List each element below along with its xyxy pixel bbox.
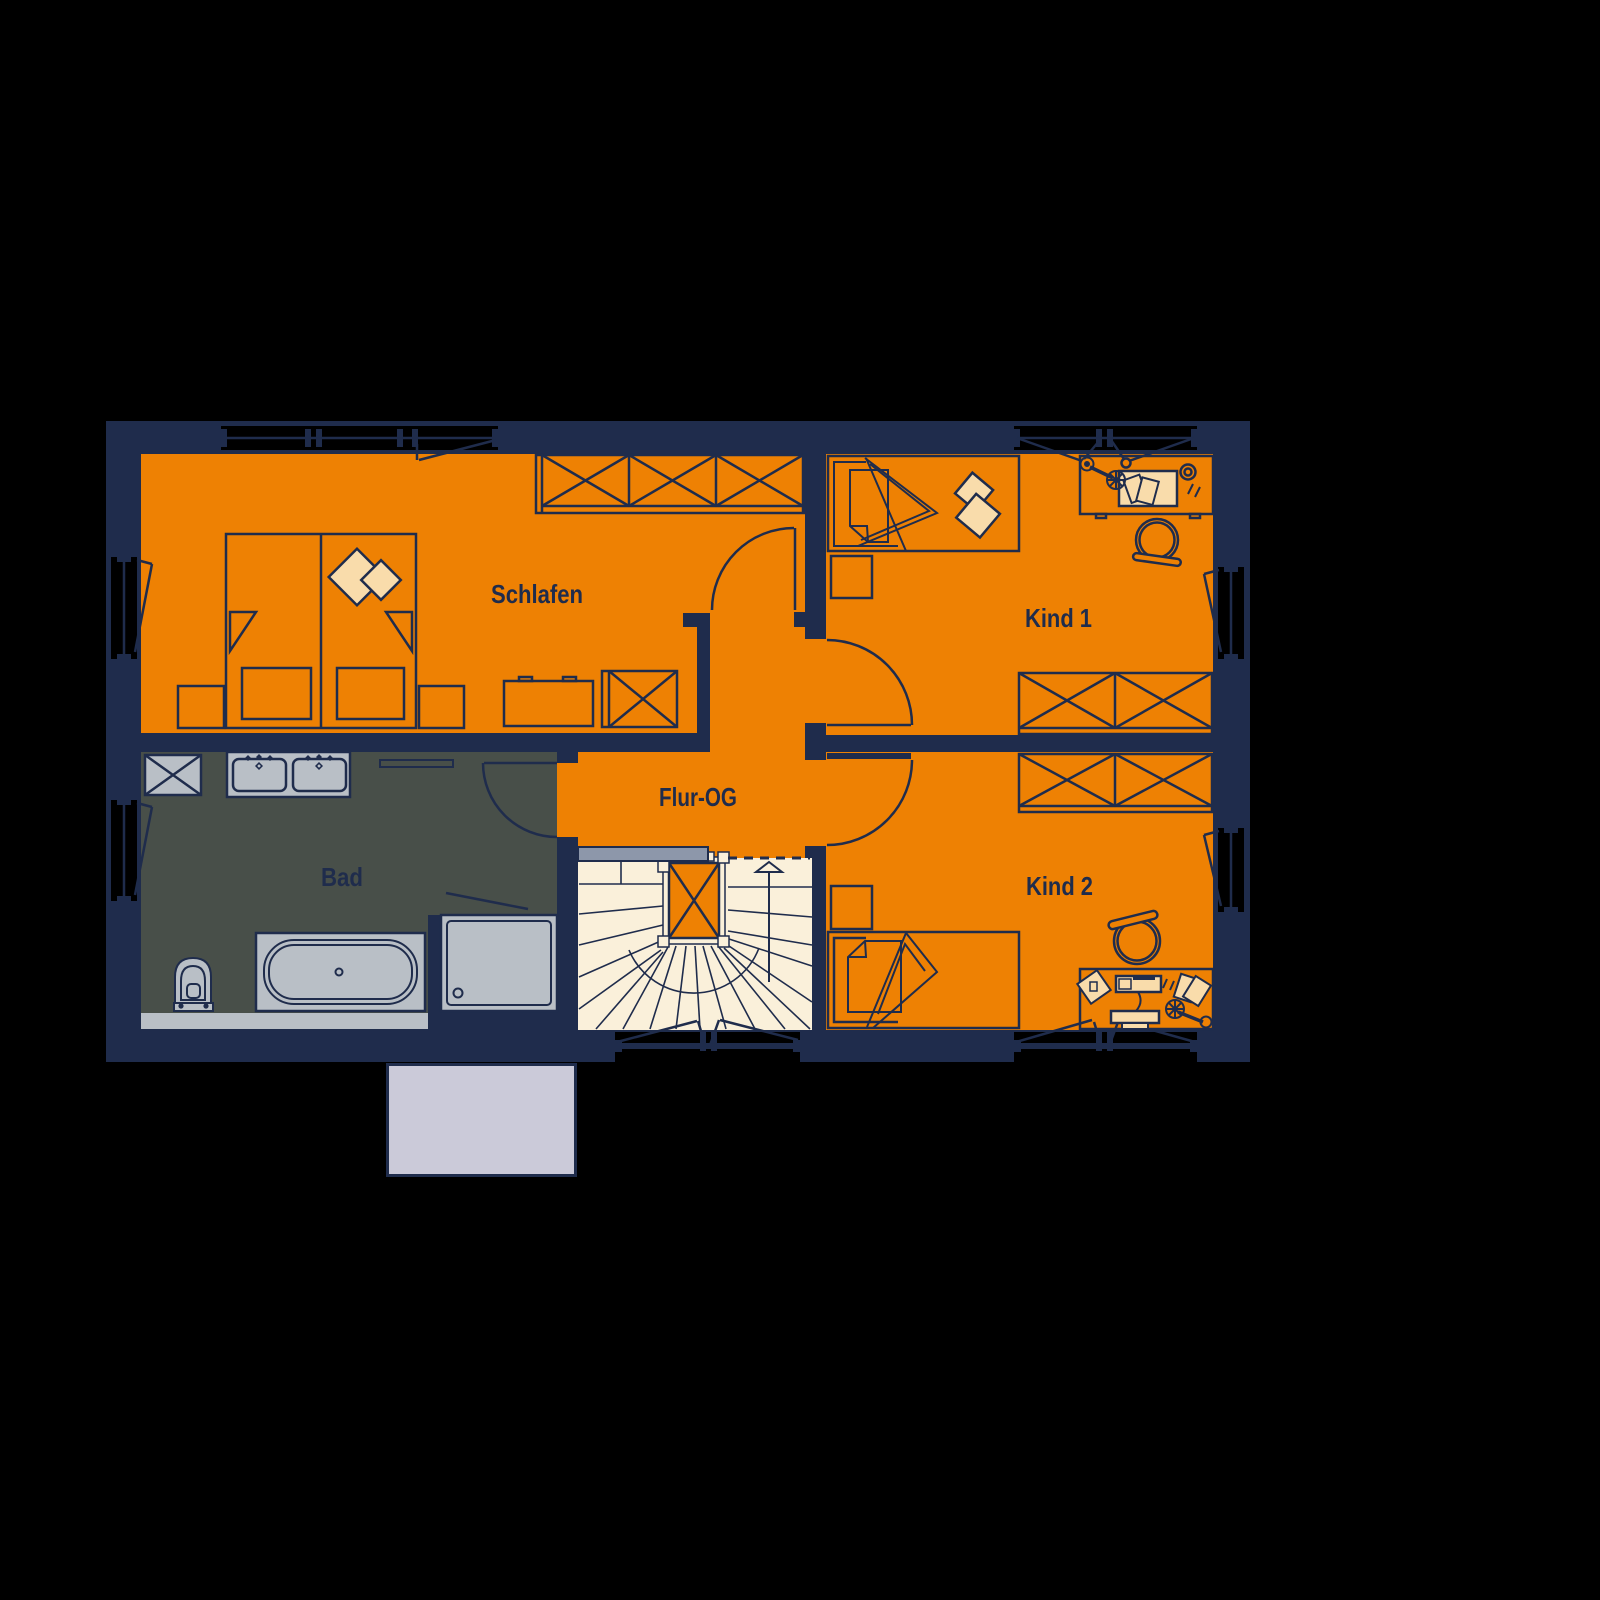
- svg-text:Bad: Bad: [321, 862, 363, 892]
- svg-text:Kind 1: Kind 1: [1025, 603, 1092, 633]
- svg-text:Flur-OG: Flur-OG: [659, 782, 737, 812]
- svg-text:Schlafen: Schlafen: [491, 579, 583, 609]
- svg-text:Kind 2: Kind 2: [1026, 871, 1093, 901]
